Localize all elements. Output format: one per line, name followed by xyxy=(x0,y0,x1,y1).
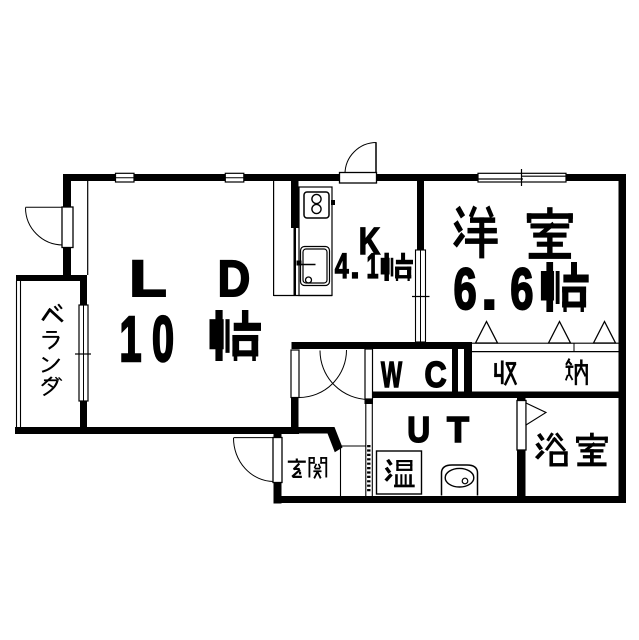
svg-text:D: D xyxy=(218,251,250,307)
svg-text:4: 4 xyxy=(335,247,349,286)
svg-text:0: 0 xyxy=(152,305,174,376)
svg-text:W: W xyxy=(381,356,403,396)
svg-text:U: U xyxy=(407,410,430,450)
svg-text:1: 1 xyxy=(366,248,378,286)
svg-text:C: C xyxy=(425,356,447,396)
svg-text:.: . xyxy=(350,247,360,286)
svg-text:.: . xyxy=(481,257,497,322)
svg-text:T: T xyxy=(447,409,469,450)
svg-text:L: L xyxy=(129,250,166,307)
svg-text:6: 6 xyxy=(453,256,476,321)
svg-text:1: 1 xyxy=(119,305,141,376)
svg-text:6: 6 xyxy=(510,256,533,321)
